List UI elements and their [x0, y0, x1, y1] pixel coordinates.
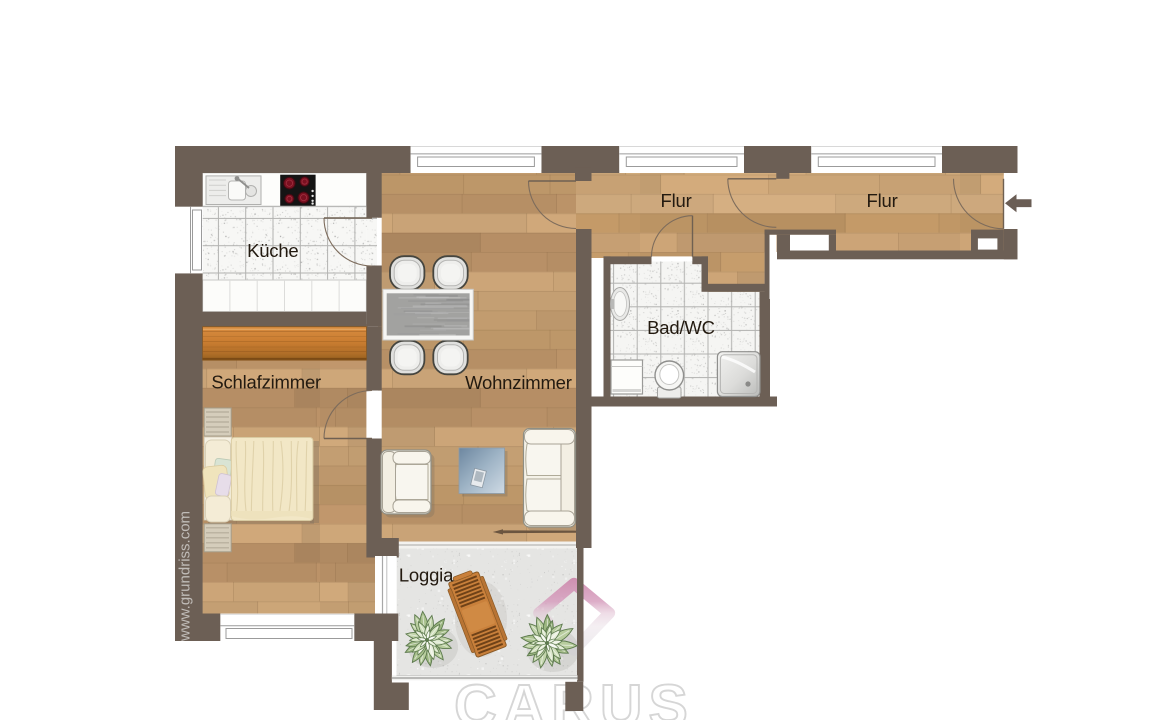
svg-text:Wohnzimmer: Wohnzimmer — [465, 372, 572, 393]
svg-text:Schlafzimmer: Schlafzimmer — [211, 372, 321, 393]
svg-text:Bad/WC: Bad/WC — [647, 317, 715, 338]
svg-text:Loggia: Loggia — [399, 565, 454, 586]
svg-text:Küche: Küche — [247, 240, 298, 261]
svg-text:Flur: Flur — [660, 190, 691, 211]
svg-text:www.grundriss.com: www.grundriss.com — [177, 511, 194, 642]
svg-text:Flur: Flur — [866, 190, 897, 211]
